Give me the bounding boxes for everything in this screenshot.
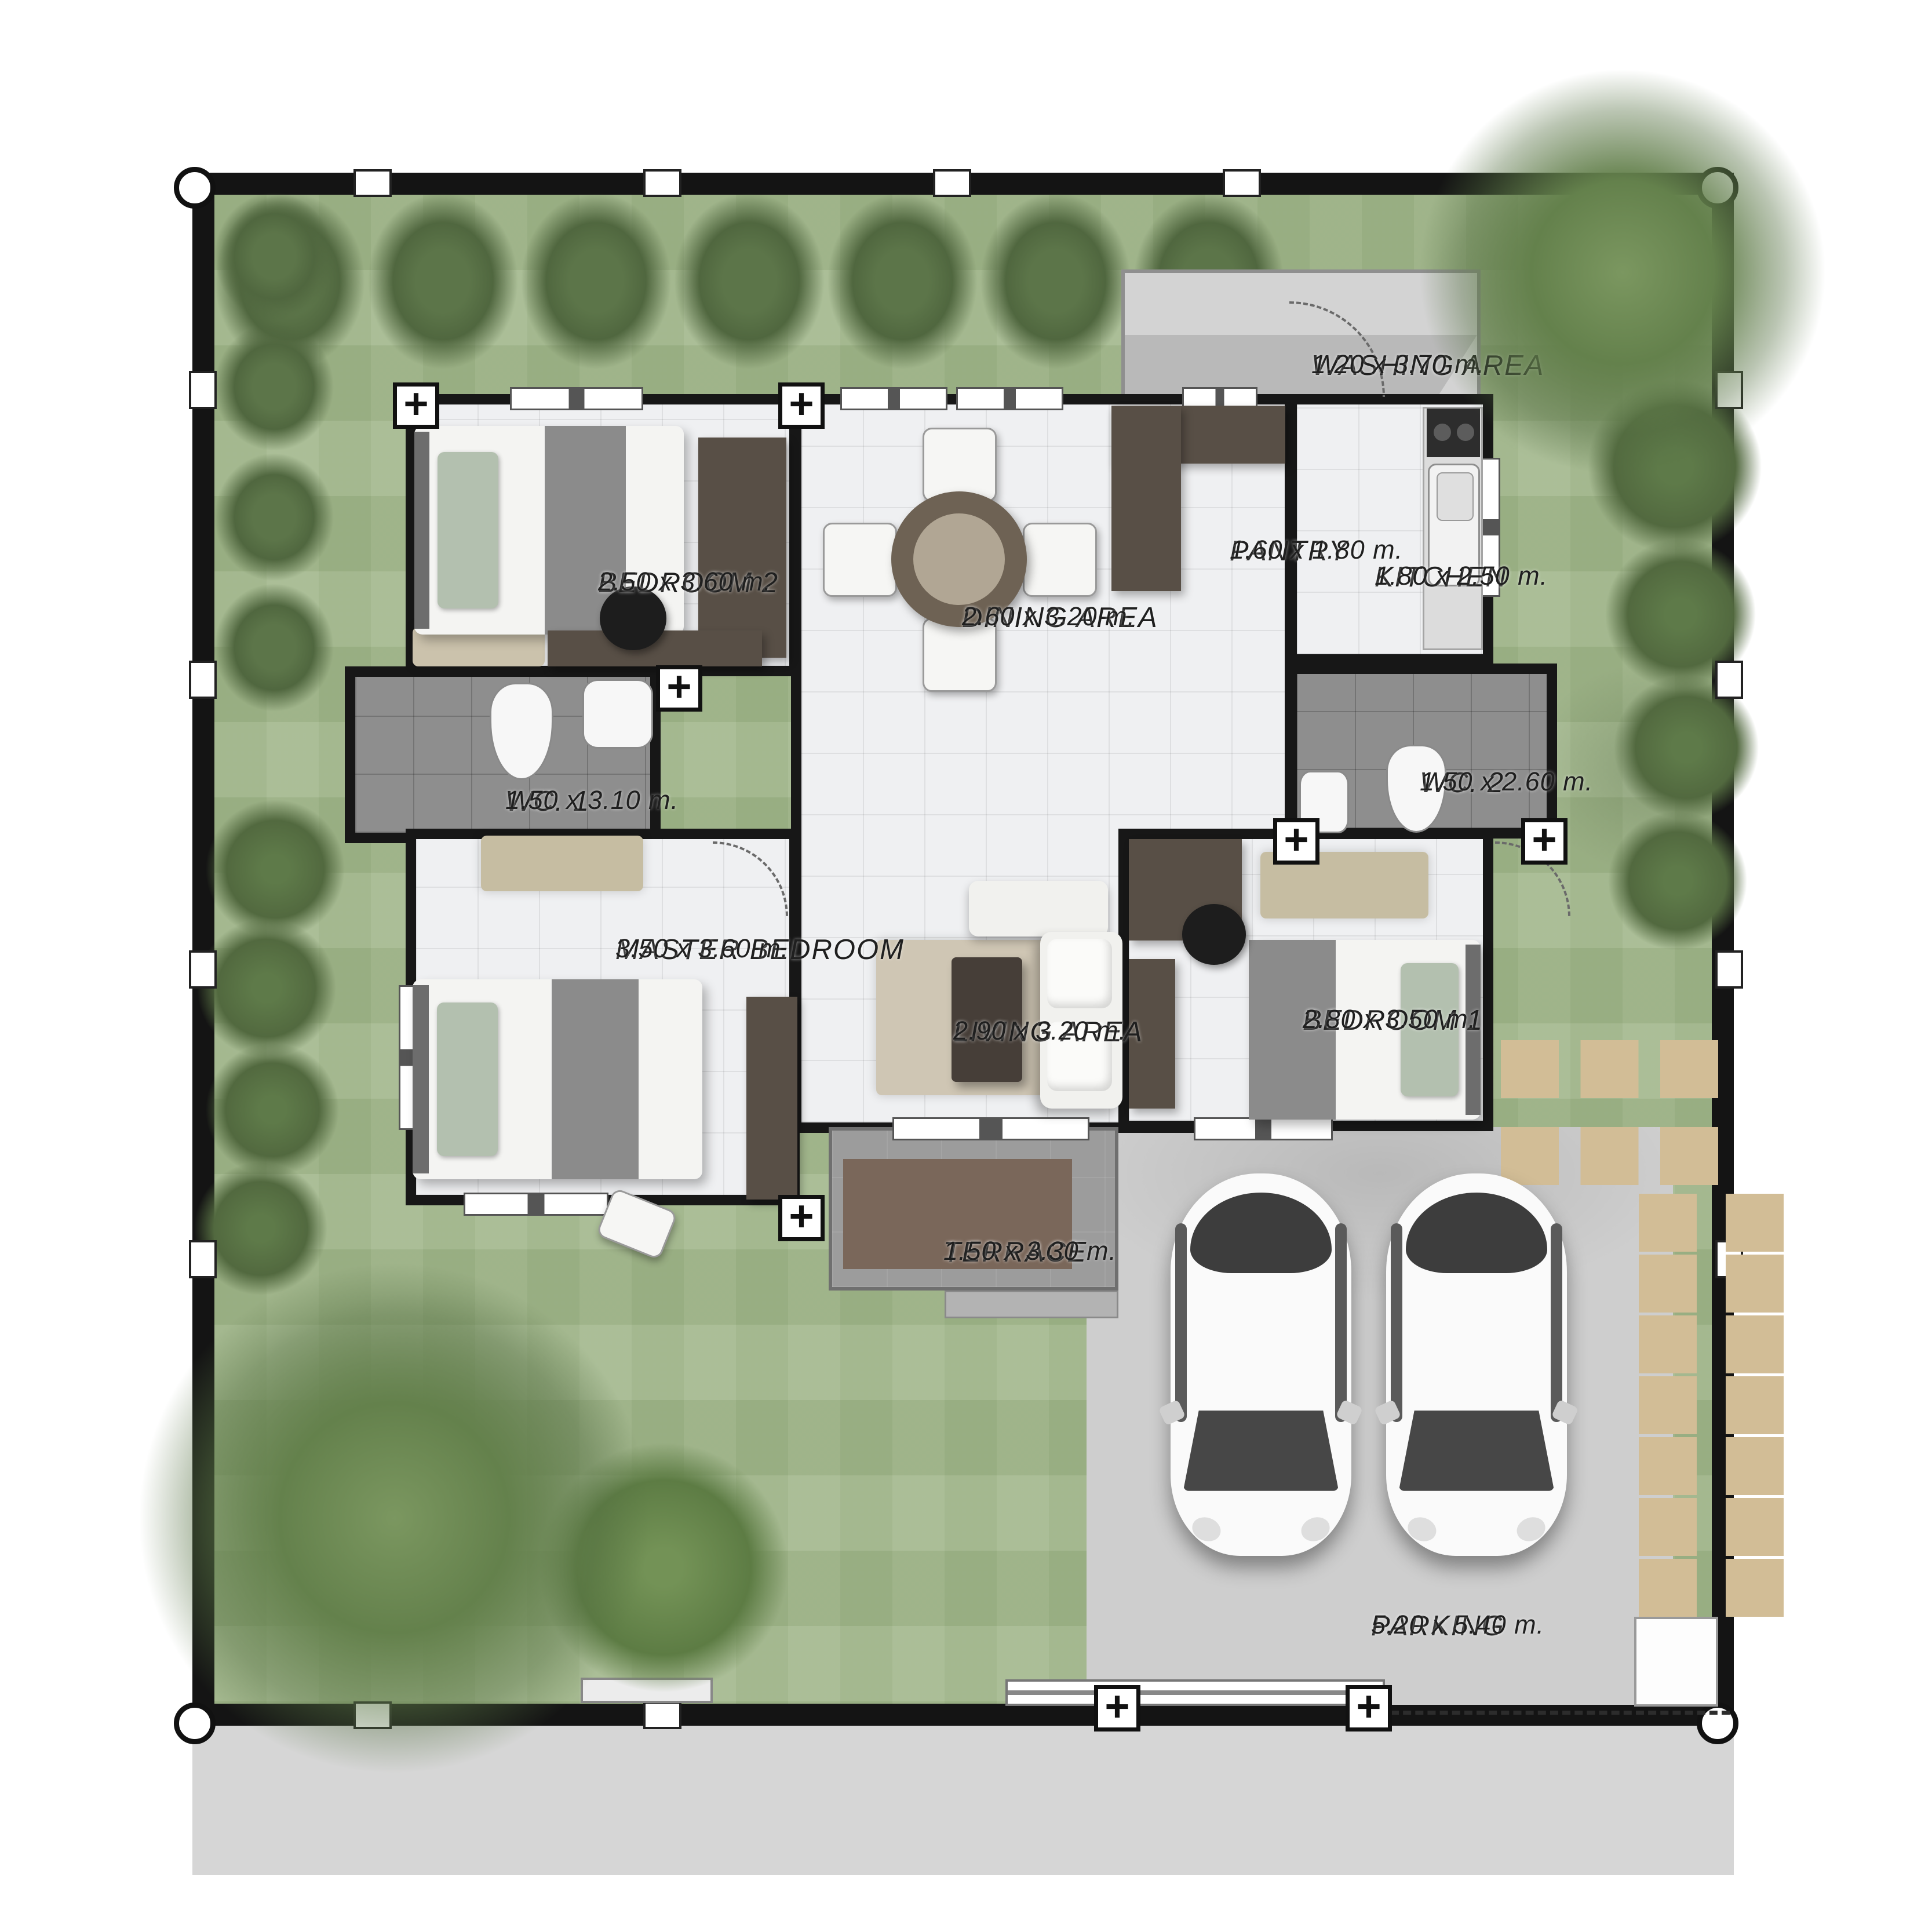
stepping-stones-vertical — [1639, 1194, 1784, 1617]
room-dims: 3.50 x 3.60 m. — [615, 932, 789, 966]
window — [510, 387, 643, 410]
garden-pad — [1634, 1617, 1718, 1707]
bush — [206, 1043, 339, 1176]
fence-post — [189, 950, 217, 989]
wall-corner-marker: + — [656, 665, 702, 712]
bush — [206, 800, 345, 939]
car — [1386, 1173, 1567, 1556]
fence-post — [1715, 661, 1743, 699]
car-side-window — [1335, 1223, 1347, 1422]
fence-post — [933, 169, 971, 197]
fence-post — [353, 169, 392, 197]
driveway-gate — [1005, 1679, 1385, 1706]
window — [956, 387, 1063, 410]
hedge-left — [213, 191, 335, 713]
wall-corner-marker: + — [1094, 1685, 1140, 1731]
wall-corner-marker: + — [1346, 1685, 1392, 1731]
car — [1171, 1173, 1351, 1556]
car-windshield — [1399, 1410, 1554, 1491]
dining-chair — [1023, 523, 1097, 597]
tree-top-right — [1420, 70, 1825, 475]
property-dashed-line — [1391, 1711, 1730, 1715]
bed-blanket — [552, 979, 639, 1179]
basin-wc-1 — [582, 679, 653, 749]
tree-bottom-left — [139, 1263, 649, 1773]
bush — [197, 918, 336, 1058]
bed-headboard — [414, 432, 429, 629]
room-dims: 2.80 x 3.50 m. — [1303, 1003, 1476, 1037]
fence-post — [189, 1240, 217, 1278]
pantry-counter — [1111, 406, 1181, 591]
car-side-window — [1391, 1223, 1402, 1422]
dining-chair — [923, 428, 997, 502]
chair-bedroom-1 — [1182, 904, 1246, 965]
room-dims: 1.50 x 3.30 m. — [943, 1234, 1117, 1268]
sliding-door — [892, 1117, 1089, 1140]
room-dims: 2.90 x 3.20 m. — [953, 1014, 1127, 1048]
room-dims: 2.60 x 3.20 m. — [962, 600, 1135, 634]
room-dims: 1.50 x 2.60 m. — [1420, 765, 1593, 799]
bed-master — [413, 979, 702, 1179]
dresser-master — [481, 836, 643, 891]
bed-headboard — [413, 985, 429, 1173]
window — [840, 387, 947, 410]
bed-pillow — [437, 1003, 498, 1156]
wall-corner-marker: + — [1273, 818, 1319, 865]
corner-marker — [1697, 1703, 1738, 1744]
wall-corner-marker: + — [393, 382, 439, 429]
sofa-seat — [969, 881, 1108, 936]
fence-post — [189, 371, 217, 409]
dining-chair — [823, 523, 897, 597]
wall-corner-marker: + — [1521, 818, 1568, 865]
terrace-step — [945, 1291, 1118, 1318]
bed-pillow — [438, 452, 498, 608]
fence-post — [643, 169, 681, 197]
bush — [1608, 811, 1747, 950]
room-dims: 1.50 x 3.10 m. — [505, 783, 679, 818]
corner-marker — [174, 167, 216, 209]
fence-post — [1223, 169, 1261, 197]
room-dims: 5.20 x 5.40 m. — [1371, 1608, 1544, 1642]
stepping-stones-horizontal — [1501, 1040, 1718, 1185]
car-side-window — [1175, 1223, 1187, 1422]
car-side-window — [1551, 1223, 1562, 1422]
fence-post — [189, 661, 217, 699]
wall-corner-marker: + — [778, 1195, 825, 1241]
car-windshield — [1183, 1410, 1339, 1491]
wardrobe-bedroom-2 — [698, 438, 786, 658]
fence-post — [1715, 950, 1743, 989]
desk-master — [746, 997, 797, 1200]
stove-icon — [1427, 409, 1480, 457]
corner-marker — [174, 1703, 216, 1744]
wall-corner-marker: + — [778, 382, 825, 429]
room-dims: 1.80 x 2.50 m. — [1375, 559, 1548, 593]
fence-post — [643, 1701, 681, 1729]
window — [1194, 1117, 1333, 1140]
floor-plan-canvas: + + + + + + + + — [0, 0, 1932, 1932]
room-dims: 2.50 x 3.60 m. — [598, 565, 771, 599]
window — [464, 1193, 608, 1216]
